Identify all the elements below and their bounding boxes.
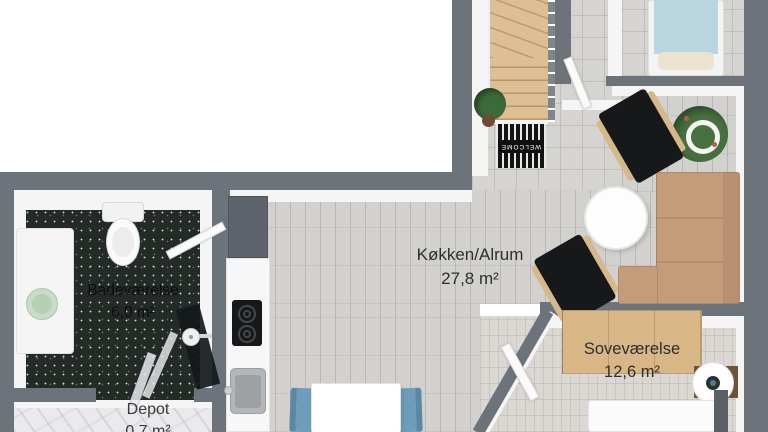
stair-winders: [490, 0, 550, 58]
wall-right-outer: [744, 0, 768, 432]
sofa-cushion-line: [657, 261, 723, 263]
room-name: Køkken/Alrum: [417, 243, 524, 267]
wall-left-outer: [0, 172, 14, 432]
wall-depot-a: [14, 388, 96, 402]
bed-headboard: [714, 390, 728, 432]
room-name: Depot: [125, 399, 170, 421]
room-area: 6,0 m²: [87, 302, 178, 324]
bed-mattress-blue: [654, 0, 718, 54]
bed-bedroom: [588, 400, 718, 432]
burner-inner: [243, 330, 251, 338]
kitchen-faucet: [224, 386, 233, 395]
burner: [238, 325, 256, 343]
doormat-text-band: WELCOME: [498, 140, 544, 153]
sofa-chaise: [618, 266, 658, 304]
dining-table: [312, 384, 400, 432]
wall-top-room-bottom: [606, 76, 744, 86]
room-label-badevaerelse: Badeværelse 6,0 m²: [87, 280, 178, 323]
room-label-kokken-alrum: Køkken/Alrum 27,8 m²: [417, 243, 524, 291]
sofa-main: [656, 172, 740, 304]
sofa-cushion-line: [657, 217, 723, 219]
welcome-doormat: WELCOME: [496, 124, 546, 168]
shower-head: [182, 328, 200, 346]
room-label-sovevaerelse: Soveværelse 12,6 m²: [584, 338, 680, 384]
trim-top-room-left: [608, 0, 622, 78]
toilet-bowl: [106, 218, 140, 266]
room-area: 27,8 m²: [417, 267, 524, 291]
dining-chair-left: [289, 388, 315, 432]
toilet-seat: [112, 227, 134, 257]
plant-pot-small: [482, 114, 495, 127]
doormat-text: WELCOME: [498, 140, 544, 153]
bed-pillow: [658, 52, 714, 70]
burner: [238, 305, 256, 323]
kitchen-sink: [230, 368, 266, 414]
room-name: Soveværelse: [584, 338, 680, 361]
plant-fleck: [684, 116, 689, 121]
coffee-table: [584, 186, 648, 250]
stair-railing: [548, 0, 555, 122]
room-label-depot: Depot 0,7 m²: [125, 399, 170, 432]
dining-chair-right: [397, 388, 423, 432]
room-area: 0,7 m²: [125, 421, 170, 432]
room-area: 12,6 m²: [584, 361, 680, 384]
wall-stairs-left: [452, 0, 472, 190]
plant-pot-ring: [686, 120, 720, 154]
wall-top-left: [0, 172, 472, 190]
kitchen-sink-basin: [235, 375, 261, 408]
room-name: Badeværelse: [87, 280, 178, 302]
shower-head-center: [189, 335, 193, 339]
vessel-sink-basin: [32, 294, 52, 314]
wall-depot-b: [194, 388, 212, 402]
vessel-sink: [26, 288, 58, 320]
kitchen-tall-appliance: [228, 196, 268, 258]
floor-plan: WELCOME: [0, 0, 768, 432]
fan-core: [710, 380, 716, 386]
burner-inner: [243, 310, 251, 318]
plant-fleck-2: [712, 142, 717, 147]
cooktop: [232, 300, 262, 346]
